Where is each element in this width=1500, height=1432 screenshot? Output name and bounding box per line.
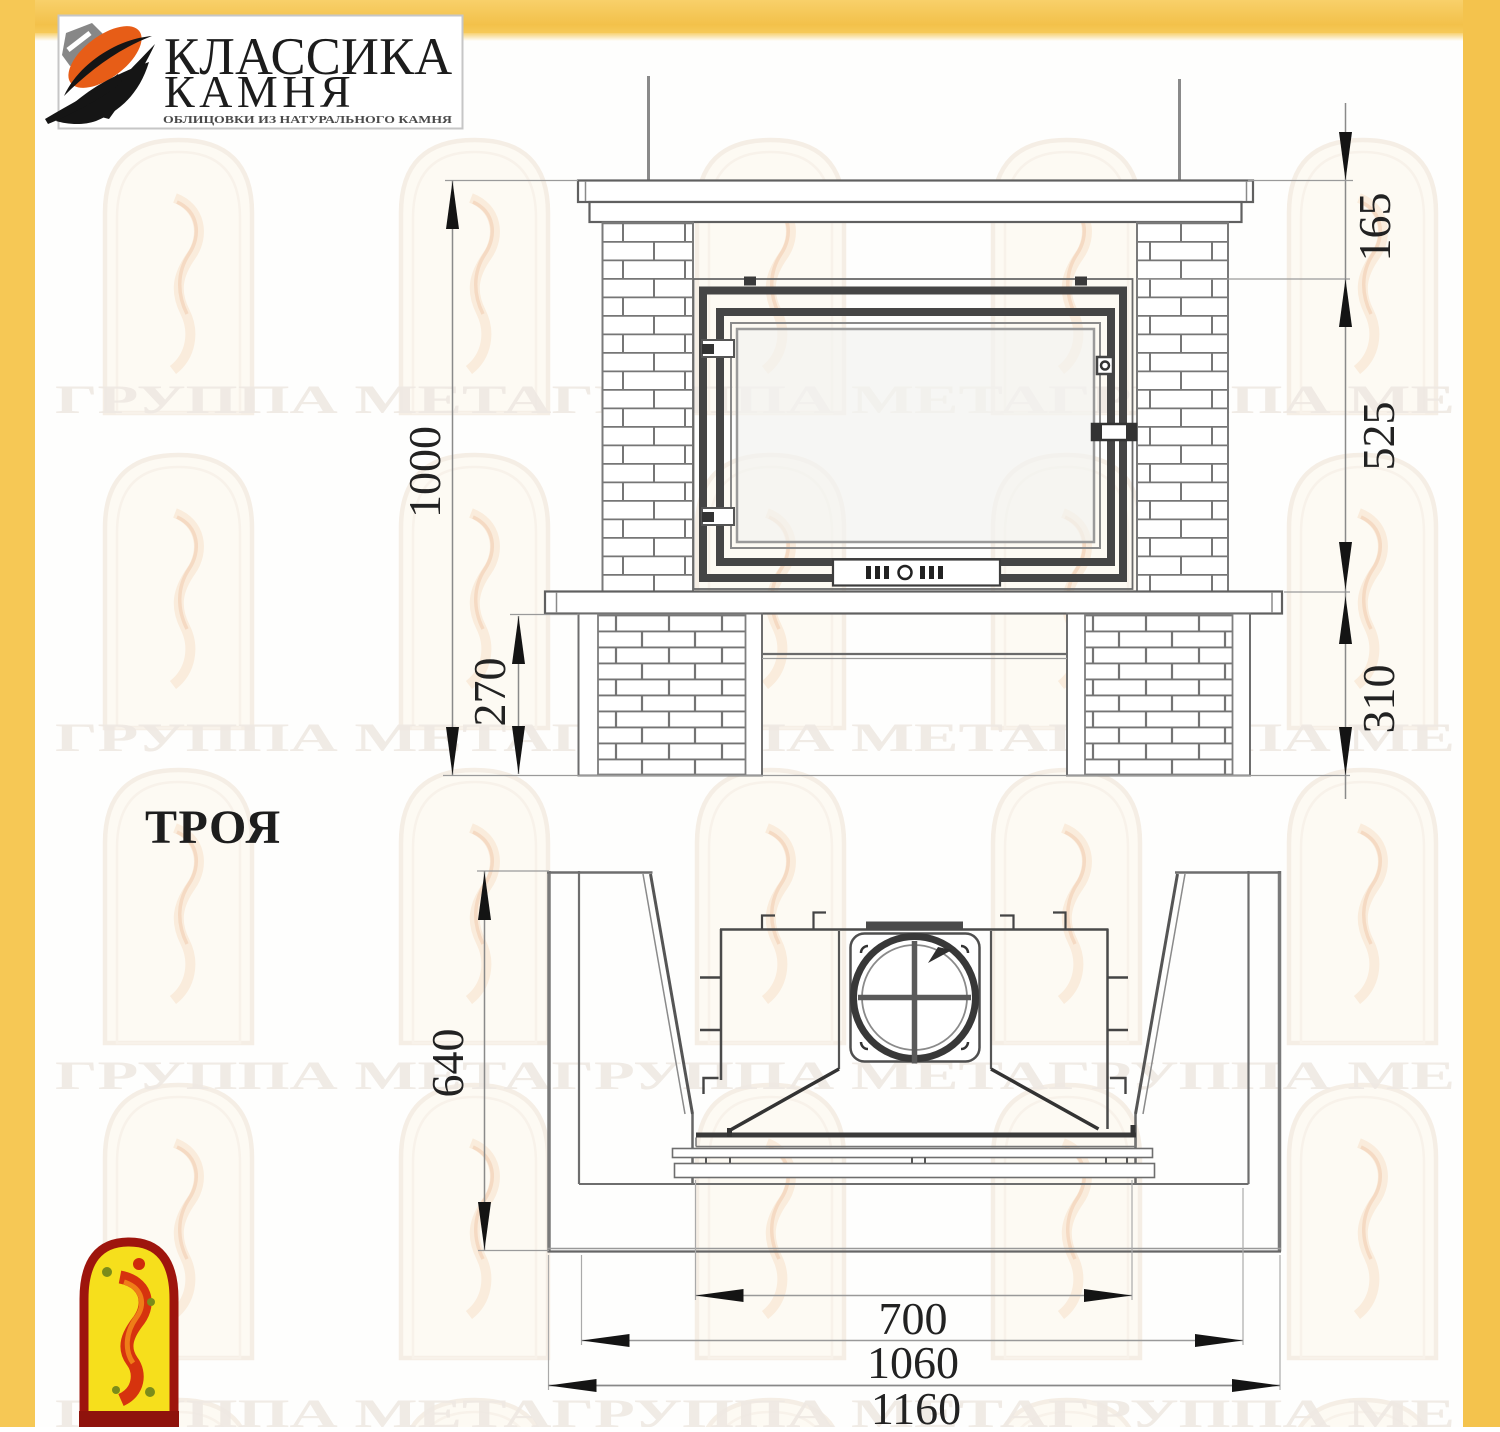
svg-text:640: 640 [422,1029,473,1098]
svg-text:ТРОЯ: ТРОЯ [145,801,282,854]
svg-text:КАМНЯ: КАМНЯ [164,66,355,117]
svg-text:165: 165 [1349,193,1400,262]
svg-text:1000: 1000 [399,426,450,518]
svg-text:310: 310 [1353,665,1404,734]
svg-text:525: 525 [1353,402,1404,471]
svg-text:ГРУППА МЕТАГРУППА МЕТАГРУППА М: ГРУППА МЕТАГРУППА МЕТАГРУППА МЕ [55,1053,1455,1098]
svg-text:270: 270 [464,658,515,727]
svg-text:1160: 1160 [871,1383,961,1427]
svg-text:ОБЛИЦОВКИ ИЗ НАТУРАЛЬНОГО КАМН: ОБЛИЦОВКИ ИЗ НАТУРАЛЬНОГО КАМНЯ [163,114,452,126]
svg-text:ГРУППА МЕТАГРУППА МЕТАГРУППА М: ГРУППА МЕТАГРУППА МЕТАГРУППА МЕ [55,1391,1455,1427]
svg-text:1060: 1060 [867,1337,959,1388]
